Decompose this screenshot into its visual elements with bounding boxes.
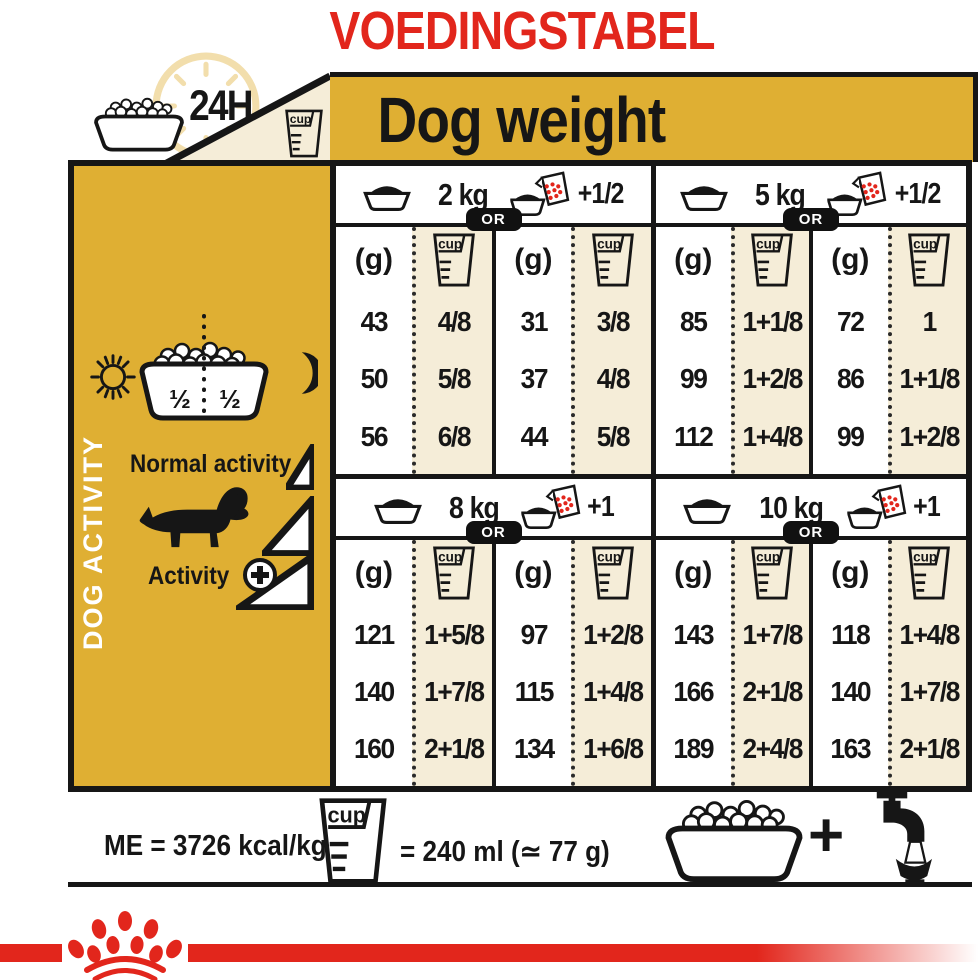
amount-cell: 72: [815, 306, 885, 338]
weight-block-10kg: 10 kg +1 OR (g) 143 166 189 1+7/: [651, 474, 966, 786]
grams-column: (g) 97 115 134: [492, 540, 572, 786]
amount-cell: 189: [658, 733, 728, 765]
amount-cell: 1+4/8: [737, 421, 807, 453]
amount-cell: 44: [498, 421, 569, 453]
amount-cell: 163: [815, 733, 885, 765]
amount-cell: 112: [658, 421, 728, 453]
grams-unit-label: (g): [514, 556, 552, 590]
amount-cell: 1+6/8: [578, 733, 649, 765]
grams-unit-label: (g): [831, 556, 869, 590]
amount-cell: 97: [498, 619, 569, 651]
grams-column: (g) 121 140 160: [336, 540, 412, 786]
grams-unit-label: (g): [355, 243, 393, 277]
cup-icon: [749, 545, 795, 601]
amount-cell: 166: [658, 676, 728, 708]
grams-unit-label: (g): [831, 243, 869, 277]
brand-stripe-left: [0, 944, 62, 962]
amount-cell: 1+4/8: [894, 619, 964, 651]
amount-cell: 31: [498, 306, 569, 338]
grams-column: (g) 85 99 112: [656, 227, 731, 474]
activity-level-triangle-small: [286, 444, 314, 490]
brand-stripe: [188, 944, 978, 962]
amount-cell: 2+1/8: [737, 676, 807, 708]
amount-cell: 1+1/8: [894, 363, 964, 395]
supplement-label: +1/2: [895, 178, 941, 211]
block-body: (g) 143 166 189 1+7/8 2+1/8 2+4/8: [656, 536, 966, 786]
normal-activity-label: Normal activity: [130, 450, 309, 479]
amount-cell: 43: [338, 306, 409, 338]
cups-column: 1+5/8 1+7/8 2+1/8: [412, 540, 492, 786]
activity-plus-icon: [242, 557, 278, 593]
amount-cell: 1+7/8: [737, 619, 807, 651]
cups-column: 3/8 4/8 5/8: [571, 227, 651, 474]
dachshund-icon: [136, 478, 264, 562]
grams-column: (g) 143 166 189: [656, 540, 731, 786]
cup-icon: [590, 545, 636, 601]
cup-icon: [906, 232, 952, 288]
cup-icon: [284, 108, 324, 159]
royal-canin-crown-logo: [62, 908, 188, 980]
amount-cell: 160: [338, 733, 409, 765]
amount-cell: 1+7/8: [418, 676, 489, 708]
amount-cell: 3/8: [578, 306, 649, 338]
bag-and-bowl-icon: [521, 484, 583, 532]
amount-cell: 2+4/8: [737, 733, 807, 765]
grams-unit-label: (g): [355, 556, 393, 590]
bowl-icon: [677, 178, 731, 211]
food-bowl-icon: [658, 794, 810, 886]
amount-cell: 50: [338, 363, 409, 395]
grams-column: (g) 72 86 99: [809, 227, 888, 474]
amount-cell: 1+2/8: [737, 363, 807, 395]
dog-weight-label: Dog weight: [377, 83, 665, 157]
amount-cell: 37: [498, 363, 569, 395]
amount-cell: 5/8: [578, 421, 649, 453]
cup-icon: [906, 545, 952, 601]
weight-header: 10 kg +1 OR: [656, 479, 966, 536]
block-body: (g) 85 99 112 1+1/8 1+2/8 1+4/8: [656, 223, 966, 474]
cup-icon: [316, 796, 390, 886]
grams-column: (g) 31 37 44: [492, 227, 572, 474]
amount-cell: 1+2/8: [578, 619, 649, 651]
page-title: VOEDINGSTABEL: [0, 0, 978, 62]
amount-cell: 143: [658, 619, 728, 651]
dog-activity-sidebar: DOG ACTIVITY Normal activity Activity: [74, 166, 336, 786]
bowl-icon: [680, 491, 734, 524]
amount-cell: 5/8: [418, 363, 489, 395]
bag-and-bowl-icon: [847, 484, 909, 532]
cups-column: 1 1+1/8 1+2/8: [888, 227, 967, 474]
supplement-label: +1: [913, 491, 940, 524]
metabolizable-energy-label: ME = 3726 kcal/kg: [104, 830, 351, 863]
amount-cell: 6/8: [418, 421, 489, 453]
cups-column: 1+4/8 1+7/8 2+1/8: [888, 540, 967, 786]
amount-cell: 1+1/8: [737, 306, 807, 338]
or-badge: OR: [783, 521, 839, 544]
amount-cell: 99: [815, 421, 885, 453]
amount-cell: 115: [498, 676, 569, 708]
amount-cell: 2+1/8: [894, 733, 964, 765]
weight-header: 5 kg +1/2 OR: [656, 166, 966, 223]
amount-cell: 85: [658, 306, 728, 338]
amount-cell: 99: [658, 363, 728, 395]
amount-cell: 1+7/8: [894, 676, 964, 708]
cups-column: 1+7/8 2+1/8 2+4/8: [731, 540, 810, 786]
amount-cell: 1: [894, 306, 964, 338]
amount-cell: 1+5/8: [418, 619, 489, 651]
bowl-icon: [371, 491, 425, 524]
activity-level-triangle-medium: [262, 496, 314, 556]
amount-cell: 118: [815, 619, 885, 651]
amount-cell: 134: [498, 733, 569, 765]
cups-column: 4/8 5/8 6/8: [412, 227, 492, 474]
supplement-label: +1/2: [578, 178, 624, 211]
moon-icon: [282, 350, 318, 396]
water-tap-icon: [852, 786, 932, 886]
or-badge: OR: [783, 208, 839, 231]
amount-cell: 4/8: [578, 363, 649, 395]
cup-icon: [431, 232, 477, 288]
amount-cell: 140: [338, 676, 409, 708]
weight-header: 8 kg +1 OR: [336, 479, 651, 536]
footer-divider: [68, 882, 972, 887]
grams-unit-label: (g): [674, 556, 712, 590]
cup-icon: [590, 232, 636, 288]
grams-unit-label: (g): [674, 243, 712, 277]
cup-icon: [749, 232, 795, 288]
cups-column: 1+2/8 1+4/8 1+6/8: [571, 540, 651, 786]
amount-cell: 56: [338, 421, 409, 453]
amount-cell: 140: [815, 676, 885, 708]
amount-cell: 121: [338, 619, 409, 651]
grams-column: (g) 118 140 163: [809, 540, 888, 786]
amount-cell: 4/8: [418, 306, 489, 338]
weight-header: 2 kg +1/2 OR: [336, 166, 651, 223]
weight-block-2kg: 2 kg +1/2 OR (g) 43 50 56 4/8: [336, 166, 651, 474]
amount-cell: 2+1/8: [418, 733, 489, 765]
amount-cell: 1+2/8: [894, 421, 964, 453]
cup-equivalence-label: = 240 ml (≃ 77 g): [400, 834, 633, 869]
amount-cell: 86: [815, 363, 885, 395]
weight-block-8kg: 8 kg +1 OR (g) 121 140 160 1+5/8: [336, 474, 651, 786]
block-body: (g) 43 50 56 4/8 5/8 6/8 (g: [336, 223, 651, 474]
or-badge: OR: [466, 208, 522, 231]
amount-cell: 1+4/8: [578, 676, 649, 708]
or-badge: OR: [466, 521, 522, 544]
dog-activity-label: DOG ACTIVITY: [78, 438, 109, 650]
activity-label: Activity: [148, 562, 238, 591]
block-body: (g) 121 140 160 1+5/8 1+7/8 2+1/8: [336, 536, 651, 786]
cups-column: 1+1/8 1+2/8 1+4/8: [731, 227, 810, 474]
dog-weight-header: Dog weight: [330, 72, 978, 162]
bowl-icon: [360, 178, 414, 211]
cup-icon: [431, 545, 477, 601]
half-bowl-icon: [124, 312, 284, 442]
grams-column: (g) 43 50 56: [336, 227, 412, 474]
weight-block-5kg: 5 kg +1/2 OR (g) 85 99 112 1+1/8: [651, 166, 966, 474]
weight-blocks-grid: 2 kg +1/2 OR (g) 43 50 56 4/8: [336, 166, 966, 786]
plus-sign: +: [808, 800, 844, 871]
feeding-table: DOG ACTIVITY Normal activity Activity 2 …: [68, 160, 972, 792]
supplement-label: +1: [587, 491, 614, 524]
grams-unit-label: (g): [514, 243, 552, 277]
